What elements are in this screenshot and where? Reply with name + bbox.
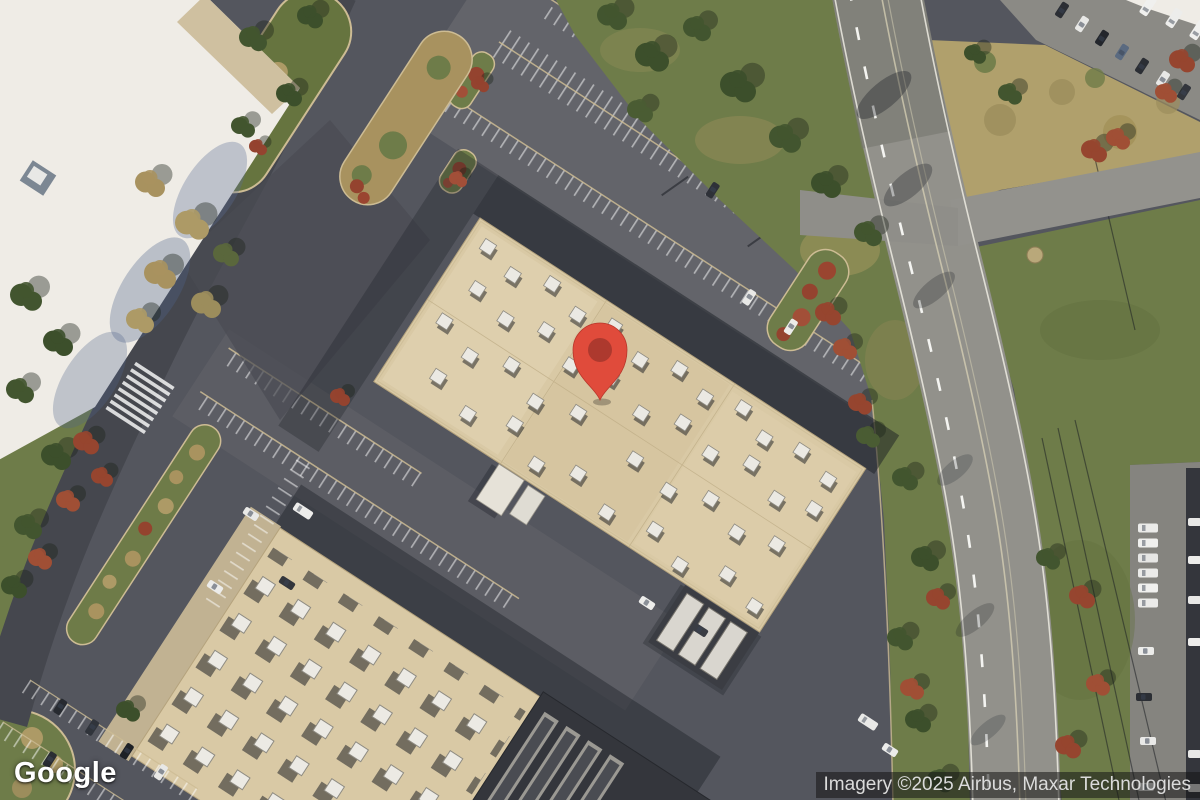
attribution-text: Imagery ©2025 Airbus, Maxar Technologies [824, 774, 1191, 795]
google-logo[interactable]: Google [14, 757, 117, 790]
satellite-imagery [0, 0, 1200, 800]
map-canvas[interactable]: Google Imagery ©2025 Airbus, Maxar Techn… [0, 0, 1200, 800]
imagery-attribution: Imagery ©2025 Airbus, Maxar Technologies [816, 772, 1200, 798]
